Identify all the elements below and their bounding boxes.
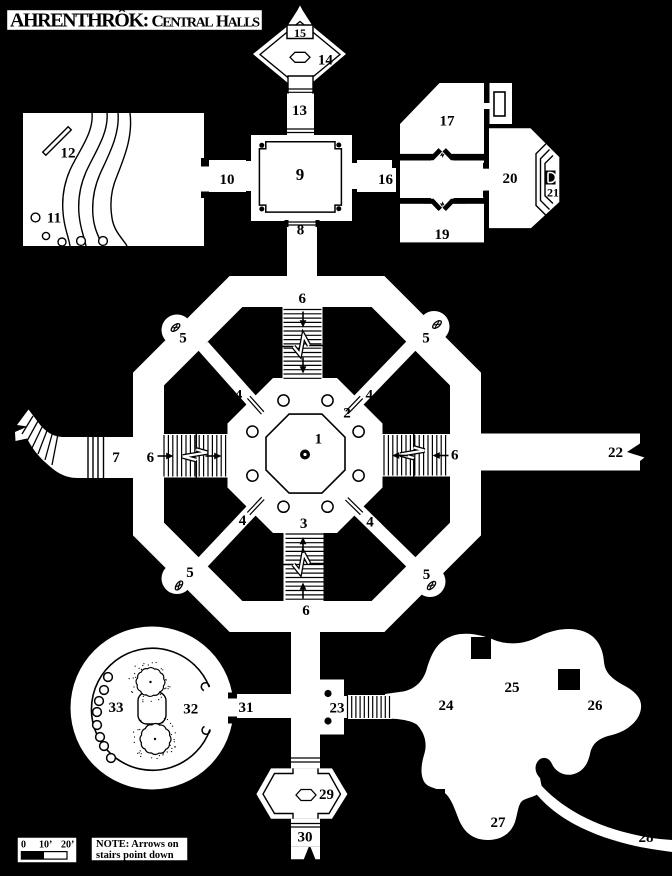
svg-text:12: 12 [61,146,76,162]
svg-text:4: 4 [235,388,243,404]
svg-text:6: 6 [147,450,155,466]
svg-text:9: 9 [296,165,305,184]
svg-text:6: 6 [302,603,310,619]
svg-text:16: 16 [378,172,394,188]
svg-text:26: 26 [588,698,604,714]
svg-text:31: 31 [239,700,254,716]
svg-text:6: 6 [299,291,307,307]
svg-text:3: 3 [300,516,308,532]
svg-text:14: 14 [318,53,334,69]
svg-text:8: 8 [297,223,305,239]
svg-text:11: 11 [47,211,61,227]
svg-text:13: 13 [292,103,307,119]
svg-text:2: 2 [343,406,351,422]
svg-text:23: 23 [330,701,345,717]
svg-text:20’: 20’ [61,840,74,851]
svg-text:28: 28 [639,830,654,846]
svg-text:AHRENTHRÔK: CENTRAL HALLS: AHRENTHRÔK: CENTRAL HALLS [10,8,260,32]
svg-text:NOTE: Arrows on: NOTE: Arrows on [96,839,179,850]
svg-text:33: 33 [109,700,124,716]
svg-text:19: 19 [435,227,450,243]
svg-text:32: 32 [183,702,198,718]
svg-text:4: 4 [239,513,247,529]
svg-text:6: 6 [451,448,459,464]
svg-text:5: 5 [422,331,430,347]
svg-text:22: 22 [608,445,623,461]
svg-text:5: 5 [179,331,187,347]
svg-text:1: 1 [315,432,323,448]
svg-text:4: 4 [366,515,374,531]
svg-text:stairs point down: stairs point down [96,850,174,861]
svg-text:4: 4 [365,388,373,404]
svg-text:21: 21 [547,186,559,200]
svg-text:17: 17 [440,114,456,130]
svg-text:5: 5 [186,565,194,581]
svg-text:7: 7 [112,450,120,466]
svg-text:10’: 10’ [39,840,52,851]
svg-text:29: 29 [319,787,334,803]
svg-text:25: 25 [505,680,520,696]
svg-text:20: 20 [503,171,518,187]
svg-text:5: 5 [423,567,431,583]
svg-text:27: 27 [491,815,507,831]
svg-text:30: 30 [298,830,313,846]
svg-text:10: 10 [220,172,235,188]
svg-text:15: 15 [294,26,306,40]
svg-text:24: 24 [439,698,455,714]
svg-text:0: 0 [21,840,26,851]
